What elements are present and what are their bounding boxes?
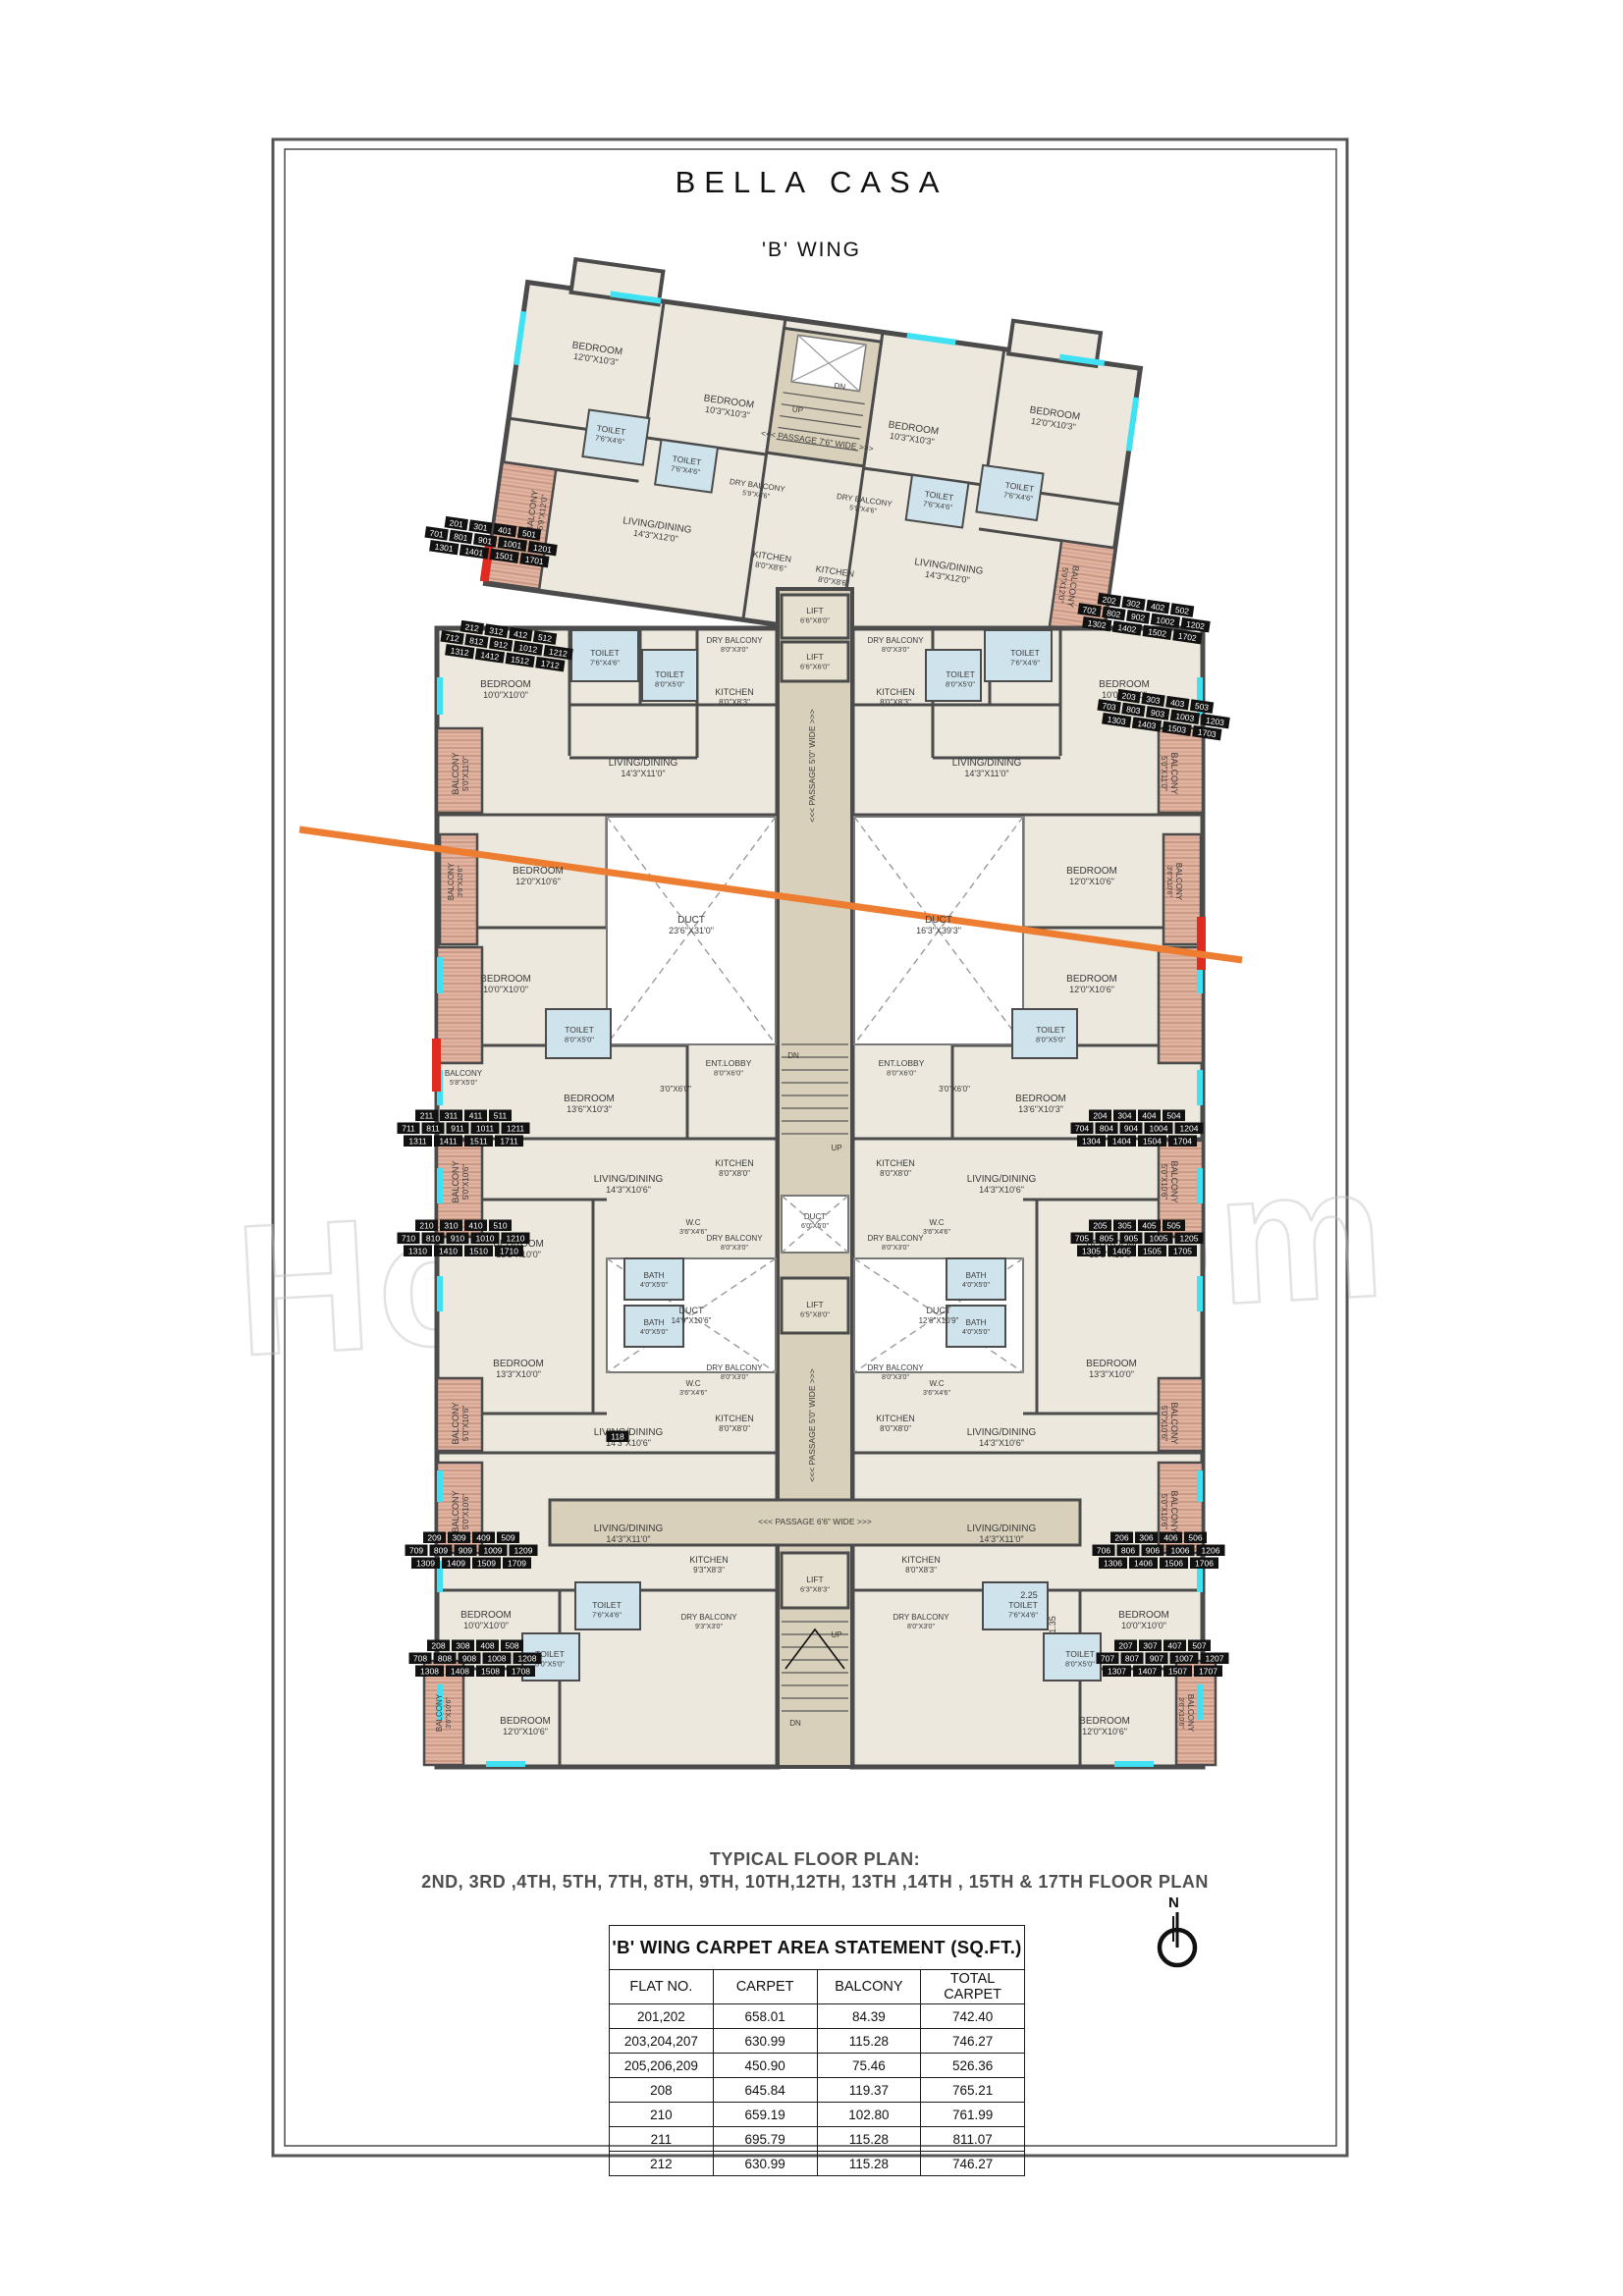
table-cell: 102.80 (817, 2103, 921, 2127)
room-label: BEDROOM13'6"X10'3" (564, 1094, 615, 1114)
room-label: TOILET8'0"X5'0" (1065, 1649, 1095, 1669)
flat-number: 508 (505, 1641, 518, 1651)
room-label: TOILET7'6"X4'6" (1008, 1600, 1038, 1620)
flat-number: 1708 (512, 1667, 530, 1677)
flat-number: 509 (501, 1533, 514, 1543)
flat-number: 1009 (484, 1546, 503, 1556)
table-cell: 746.27 (921, 2029, 1025, 2054)
flat-number: 701 (429, 528, 445, 540)
floorplan-sheet: { "page": { "title": "BELLA CASA", "wing… (0, 0, 1623, 2296)
flat-number: 808 (438, 1654, 452, 1664)
flat-number: 212 (464, 621, 480, 633)
flat-number: 411 (469, 1111, 483, 1121)
flat-number: 211 (420, 1111, 434, 1121)
north-indicator: N (1139, 1895, 1217, 1973)
room-label: TOILET8'0"X5'0" (946, 669, 975, 689)
flat-number: 406 (1163, 1533, 1177, 1543)
room-label: TOILET7'6"X4'6" (1010, 648, 1040, 667)
flat-number: 1404 (1112, 1137, 1131, 1147)
flat-number: 710 (402, 1234, 415, 1244)
room-label: BEDROOM12'0"X10'6" (500, 1716, 551, 1736)
table-header-row: FLAT NO.CARPETBALCONYTOTAL CARPET (610, 1970, 1025, 2004)
flat-number: 911 (451, 1124, 464, 1134)
room-label: TOILET7'6"X4'6" (595, 423, 627, 447)
flat-number: 901 (477, 535, 493, 547)
flat-number: 1005 (1150, 1234, 1168, 1244)
page-title: BELLA CASA (0, 165, 1623, 200)
table-cell: 115.28 (817, 2127, 921, 2152)
flat-number: 910 (451, 1234, 464, 1244)
room-label: <<< PASSAGE 5'0" WIDE >>> (807, 1368, 817, 1482)
flat-number: 1204 (1180, 1124, 1199, 1134)
flat-number: 712 (445, 632, 460, 644)
flat-number: 503 (1194, 701, 1210, 713)
plan-caption-heading: TYPICAL FLOOR PLAN: (0, 1849, 1623, 1870)
room-label: BEDROOM13'3"X10'0" (493, 1359, 544, 1379)
flat-number: 802 (1107, 608, 1122, 619)
flat-number: 312 (489, 625, 505, 637)
flat-number: 203 (1121, 690, 1137, 702)
room-label: BEDROOM10'0"X10'0" (1118, 1610, 1169, 1630)
flat-number: 809 (434, 1546, 448, 1556)
room-label: BEDROOM12'0"X10'6" (1066, 974, 1117, 994)
room-label: 3'0"X6'0" (660, 1085, 691, 1094)
flat-number: 807 (1125, 1654, 1139, 1664)
flat-number: 707 (1101, 1654, 1114, 1664)
flat-number: 1207 (1206, 1654, 1224, 1664)
flat-number: 207 (1118, 1641, 1132, 1651)
flat-number: 1206 (1202, 1546, 1220, 1556)
table-cell: 645.84 (713, 2078, 817, 2103)
flat-number: 812 (469, 635, 485, 647)
flat-number: 903 (1150, 708, 1165, 720)
flat-number: 405 (1142, 1221, 1156, 1231)
room-label: 3'0"X6'0" (939, 1085, 970, 1094)
flat-number: 303 (1146, 694, 1162, 706)
table-cell: 746.27 (921, 2152, 1025, 2176)
flat-number: 1006 (1171, 1546, 1190, 1556)
flat-number: 907 (1150, 1654, 1163, 1664)
table-cell: 765.21 (921, 2078, 1025, 2103)
flat-number: 1210 (507, 1234, 525, 1244)
table-cell: 811.07 (921, 2127, 1025, 2152)
flat-number: 905 (1124, 1234, 1138, 1244)
flat-number: 1509 (477, 1559, 496, 1569)
table-column-header: FLAT NO. (610, 1970, 714, 2004)
flat-number: 402 (1151, 601, 1166, 613)
flat-number: 404 (1142, 1111, 1156, 1121)
table-title: 'B' WING CARPET AREA STATEMENT (SQ.FT.) (610, 1926, 1025, 1970)
room-label: <<< PASSAGE 5'0" WIDE >>> (807, 709, 817, 823)
flat-number: 301 (473, 521, 489, 533)
table-row: 211695.79115.28811.07 (610, 2127, 1025, 2152)
flat-number: 401 (498, 524, 514, 536)
flat-number: 1010 (476, 1234, 495, 1244)
flat-number: 904 (1124, 1124, 1138, 1134)
table-cell: 75.46 (817, 2054, 921, 2078)
flat-number: 912 (493, 639, 509, 651)
table-cell: 119.37 (817, 2078, 921, 2103)
flat-number: 1311 (408, 1137, 427, 1147)
room-label: BEDROOM12'0"X10'6" (1079, 1716, 1130, 1736)
flat-number: 201 (449, 517, 464, 529)
table-cell: 695.79 (713, 2127, 817, 2152)
flat-number: 1308 (420, 1667, 439, 1677)
flat-number: 306 (1139, 1533, 1153, 1543)
flat-number: 1307 (1108, 1667, 1126, 1677)
flat-number: 1211 (507, 1124, 525, 1134)
flat-number: 412 (514, 628, 529, 640)
table-row: 210659.19102.80761.99 (610, 2103, 1025, 2127)
room-label: TOILET7'6"X4'6" (590, 648, 620, 667)
flat-number: 506 (1188, 1533, 1202, 1543)
flat-number: 407 (1167, 1641, 1181, 1651)
flat-number: 1408 (451, 1667, 469, 1677)
flat-number: 502 (1174, 605, 1190, 616)
room-label: BEDROOM10'0"X10'0" (480, 679, 531, 700)
flat-number: 803 (1126, 704, 1142, 716)
flat-number: 202 (1102, 594, 1117, 606)
room-label: UP (791, 404, 803, 414)
flat-number: 403 (1170, 697, 1186, 709)
flat-number: 804 (1100, 1124, 1113, 1134)
flat-number: 1208 (518, 1654, 537, 1664)
flat-number: 708 (413, 1654, 427, 1664)
flat-number: 709 (409, 1546, 423, 1556)
flat-number: 906 (1146, 1546, 1160, 1556)
room-label: DN (789, 1719, 801, 1728)
flat-number: 408 (480, 1641, 494, 1651)
flat-number: 311 (445, 1111, 459, 1121)
room-label: BEDROOM10'0"X10'0" (480, 974, 531, 994)
flat-number: 703 (1102, 701, 1117, 713)
flat-number: 1705 (1173, 1247, 1192, 1256)
flat-number: 206 (1114, 1533, 1128, 1543)
flat-number: 702 (1082, 605, 1098, 616)
flat-number: 1506 (1164, 1559, 1183, 1569)
flat-number: 1004 (1150, 1124, 1168, 1134)
flat-number: 1411 (439, 1137, 458, 1147)
room-label: TOILET7'6"X4'6" (1003, 480, 1036, 504)
room-label: BEDROOM12'0"X10'6" (1066, 866, 1117, 886)
flat-number: 706 (1097, 1546, 1110, 1556)
table-row: 212630.99115.28746.27 (610, 2152, 1025, 2176)
flat-number: 1011 (476, 1124, 495, 1134)
flat-number: 1510 (469, 1247, 488, 1256)
table-column-header: TOTAL CARPET (921, 1970, 1025, 2004)
flat-number: 205 (1093, 1221, 1107, 1231)
table-cell: 208 (610, 2078, 714, 2103)
room-label: <<< PASSAGE 6'6" WIDE >>> (758, 1517, 872, 1526)
plan-caption-floors: 2ND, 3RD ,4TH, 5TH, 7TH, 8TH, 9TH, 10TH,… (0, 1872, 1623, 1893)
flat-number: 1410 (439, 1247, 458, 1256)
room-label: DN (834, 381, 846, 392)
flat-number: 1711 (500, 1137, 518, 1147)
table-row: 203,204,207630.99115.28746.27 (610, 2029, 1025, 2054)
flat-number: 704 (1075, 1124, 1089, 1134)
flat-number: 1310 (408, 1247, 427, 1256)
flat-number: 304 (1117, 1111, 1131, 1121)
flat-number: 208 (431, 1641, 445, 1651)
flat-number: 1704 (1173, 1137, 1192, 1147)
table-cell: 210 (610, 2103, 714, 2127)
flat-number: 810 (426, 1234, 440, 1244)
flat-number: 1511 (469, 1137, 488, 1147)
flat-number: 1205 (1180, 1234, 1199, 1244)
flat-number: 1706 (1195, 1559, 1214, 1569)
flat-number: 811 (426, 1124, 440, 1134)
room-label: 1.35 (1048, 1616, 1057, 1633)
flat-number: 1007 (1175, 1654, 1194, 1664)
room-label: TOILET8'0"X5'0" (565, 1025, 594, 1044)
room-label: UP (831, 1630, 841, 1639)
table-cell: 761.99 (921, 2103, 1025, 2127)
flat-number: 409 (476, 1533, 490, 1543)
room-label: BEDROOM12'0"X10'6" (513, 866, 564, 886)
flat-number: 210 (419, 1221, 433, 1231)
flat-number: 1305 (1082, 1247, 1101, 1256)
flat-number: 307 (1143, 1641, 1157, 1651)
flat-number: 1709 (508, 1559, 526, 1569)
flat-number-cluster: 118 (607, 1431, 629, 1443)
flat-number: 1508 (481, 1667, 500, 1677)
table-column-header: BALCONY (817, 1970, 921, 2004)
room-label: BEDROOM13'3"X10'0" (1086, 1359, 1137, 1379)
room-label: TOILET8'0"X5'0" (655, 669, 684, 689)
flat-number: 909 (459, 1546, 472, 1556)
table-column-header: CARPET (713, 1970, 817, 2004)
table-cell: 659.19 (713, 2103, 817, 2127)
flat-number: 305 (1117, 1221, 1131, 1231)
flat-number: 410 (468, 1221, 482, 1231)
flat-number: 805 (1100, 1234, 1113, 1244)
table-cell: 526.36 (921, 2054, 1025, 2078)
table-cell: 658.01 (713, 2004, 817, 2029)
table-cell: 211 (610, 2127, 714, 2152)
wing-title: 'B' WING (0, 239, 1623, 262)
table-cell: 630.99 (713, 2029, 817, 2054)
table-cell: 630.99 (713, 2152, 817, 2176)
flat-number: 1710 (500, 1247, 518, 1256)
room-label: TOILET7'6"X4'6" (671, 454, 703, 477)
flat-number: 1407 (1138, 1667, 1157, 1677)
flat-number: 511 (494, 1111, 508, 1121)
table-cell: 212 (610, 2152, 714, 2176)
room-label: BEDROOM13'6"X10'3" (1015, 1094, 1066, 1114)
flat-number: 1309 (416, 1559, 435, 1569)
table-body: 201,202658.0184.39742.40203,204,207630.9… (610, 2004, 1025, 2176)
flat-number: 1209 (514, 1546, 533, 1556)
flat-number: 1505 (1143, 1247, 1162, 1256)
flat-number: 505 (1166, 1221, 1180, 1231)
room-label: TOILET7'6"X4'6" (592, 1600, 622, 1620)
table-cell: 115.28 (817, 2029, 921, 2054)
flat-number: 309 (452, 1533, 465, 1543)
table-row: 208645.84119.37765.21 (610, 2078, 1025, 2103)
room-label: UP (831, 1144, 841, 1152)
room-label: DN (787, 1051, 799, 1060)
flat-number: 512 (537, 632, 553, 644)
room-label: BEDROOM10'0"X10'0" (460, 1610, 512, 1630)
flat-number: 504 (1166, 1111, 1180, 1121)
flat-number: 1306 (1104, 1559, 1122, 1569)
table-cell: 203,204,207 (610, 2029, 714, 2054)
flat-number: 209 (427, 1533, 441, 1543)
flat-number: 308 (456, 1641, 469, 1651)
flat-number: 118 (611, 1432, 624, 1442)
table-cell: 205,206,209 (610, 2054, 714, 2078)
room-label: 2.25 (1020, 1590, 1038, 1600)
flat-number: 1504 (1143, 1137, 1162, 1147)
table-cell: 450.90 (713, 2054, 817, 2078)
table-cell: 742.40 (921, 2004, 1025, 2029)
flat-number: 801 (454, 531, 469, 543)
table-row: 201,202658.0184.39742.40 (610, 2004, 1025, 2029)
flat-number: 1707 (1199, 1667, 1217, 1677)
room-label: TOILET8'0"X5'0" (1036, 1025, 1065, 1044)
flat-number: 711 (402, 1124, 415, 1134)
flat-number: 806 (1121, 1546, 1135, 1556)
table-row: 205,206,209450.9075.46526.36 (610, 2054, 1025, 2078)
carpet-area-table: 'B' WING CARPET AREA STATEMENT (SQ.FT.) … (609, 1925, 1025, 2176)
room-label: TOILET7'6"X4'6" (923, 489, 955, 512)
flat-number: 510 (493, 1221, 507, 1231)
flat-number: 1507 (1168, 1667, 1187, 1677)
flat-number: 507 (1192, 1641, 1206, 1651)
north-arrow-icon (1139, 1908, 1217, 1973)
flat-number: 302 (1126, 598, 1142, 610)
flat-number: 1405 (1112, 1247, 1131, 1256)
flat-number: 204 (1093, 1111, 1107, 1121)
flat-number: 1008 (488, 1654, 507, 1664)
flat-number: 902 (1130, 612, 1146, 623)
flat-number: 1409 (447, 1559, 465, 1569)
flat-number: 908 (462, 1654, 476, 1664)
table-cell: 84.39 (817, 2004, 921, 2029)
flat-number: 310 (444, 1221, 458, 1231)
flat-number: 1304 (1082, 1137, 1101, 1147)
flat-number: 1406 (1134, 1559, 1153, 1569)
table-cell: 115.28 (817, 2152, 921, 2176)
flat-number: 501 (521, 528, 537, 540)
table-cell: 201,202 (610, 2004, 714, 2029)
flat-number: 705 (1075, 1234, 1089, 1244)
